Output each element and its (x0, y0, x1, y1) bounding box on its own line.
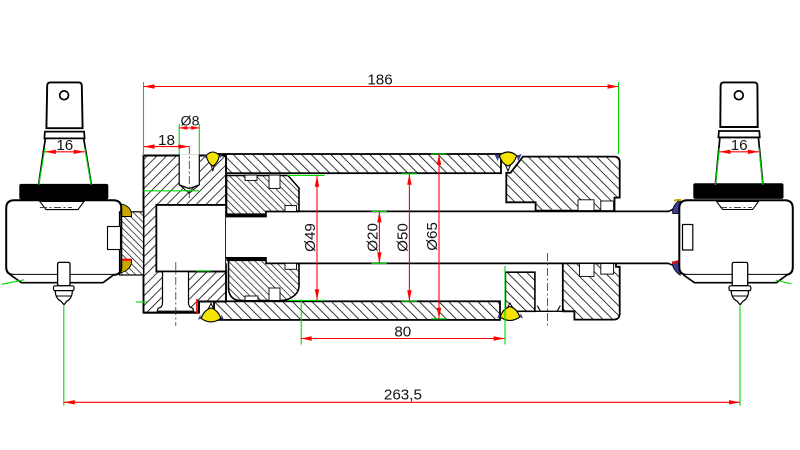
svg-text:263,5: 263,5 (384, 386, 422, 403)
svg-text:Ø65: Ø65 (424, 222, 441, 251)
svg-text:Ø20: Ø20 (365, 223, 382, 252)
svg-text:Ø50: Ø50 (395, 223, 412, 252)
svg-text:16: 16 (731, 137, 748, 154)
svg-text:Ø8: Ø8 (181, 114, 200, 130)
svg-text:16: 16 (56, 137, 73, 154)
svg-text:Ø49: Ø49 (302, 223, 319, 252)
svg-text:18: 18 (158, 132, 175, 149)
svg-text:80: 80 (394, 324, 411, 341)
svg-text:186: 186 (367, 72, 392, 89)
